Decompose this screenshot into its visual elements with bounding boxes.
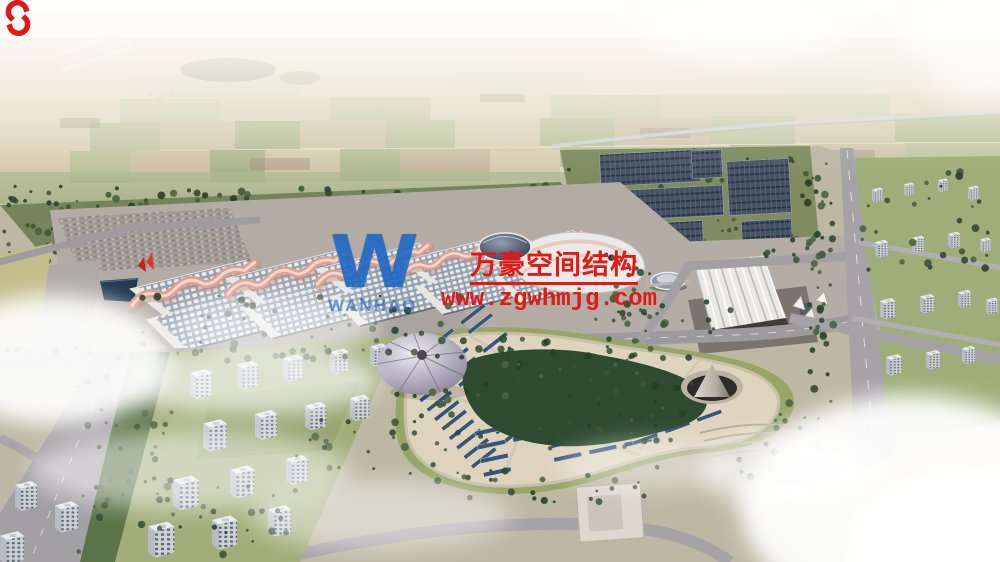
tree — [817, 417, 820, 420]
tree — [564, 432, 569, 437]
tree — [460, 337, 467, 344]
tree — [532, 496, 536, 500]
tree — [606, 345, 609, 348]
tree — [309, 438, 312, 441]
tree — [587, 424, 591, 428]
tree — [244, 302, 249, 307]
tree — [246, 529, 249, 532]
tree — [568, 421, 571, 424]
tree — [144, 198, 148, 202]
tree — [820, 236, 824, 240]
tree — [419, 331, 424, 336]
tree — [548, 446, 552, 450]
tree — [369, 325, 376, 332]
tree — [456, 472, 459, 475]
tree — [807, 302, 812, 307]
tree — [814, 189, 819, 194]
tree — [138, 427, 140, 429]
tree — [660, 303, 665, 308]
tree — [528, 357, 533, 362]
tree — [279, 352, 286, 359]
tree — [411, 349, 418, 356]
tree — [660, 355, 666, 361]
tree — [493, 478, 498, 483]
tree — [259, 508, 265, 514]
tree — [201, 504, 206, 509]
tree — [785, 399, 793, 407]
tree — [959, 248, 965, 254]
tree — [252, 540, 255, 543]
tree — [596, 431, 599, 434]
tree — [176, 352, 179, 355]
tree — [640, 381, 647, 388]
tree — [613, 362, 618, 367]
tree — [811, 260, 818, 267]
logo-letter-w: W — [330, 226, 419, 298]
tree — [52, 348, 58, 354]
tree — [139, 295, 145, 301]
tree — [568, 394, 572, 398]
tree — [164, 483, 172, 491]
tree — [31, 224, 36, 229]
logo-wordmark: WANHAO — [328, 296, 417, 316]
tree — [404, 333, 408, 337]
tree — [324, 439, 329, 444]
tree — [574, 353, 577, 356]
tree — [409, 472, 412, 475]
tree — [971, 205, 974, 208]
tree — [655, 465, 660, 470]
tree — [811, 267, 814, 270]
tree — [822, 302, 826, 306]
tree — [674, 385, 680, 391]
tree — [89, 351, 92, 354]
tree — [630, 432, 633, 435]
tree — [818, 270, 822, 274]
tree — [126, 373, 132, 379]
tree — [66, 204, 71, 209]
tree — [105, 421, 108, 424]
tree — [238, 188, 246, 196]
tree — [112, 195, 120, 203]
tree — [163, 422, 168, 427]
tree — [23, 199, 27, 203]
tree — [820, 332, 827, 339]
tree — [347, 323, 351, 327]
tree — [550, 349, 557, 356]
tree — [207, 315, 211, 319]
tree — [972, 224, 980, 232]
tree — [443, 388, 448, 393]
tree — [567, 168, 571, 172]
tree — [167, 477, 173, 483]
tree — [159, 368, 165, 374]
tree — [829, 202, 832, 205]
tree — [981, 264, 989, 272]
tree — [435, 401, 440, 406]
tree — [860, 238, 864, 242]
tree — [826, 372, 830, 376]
tree — [391, 327, 398, 334]
tree — [152, 456, 159, 463]
tree — [798, 426, 803, 431]
tree — [199, 349, 203, 353]
tree — [212, 524, 217, 529]
tree — [502, 392, 509, 399]
tree — [97, 445, 101, 449]
tree — [122, 493, 125, 496]
tree — [8, 196, 12, 200]
tree — [171, 512, 175, 516]
tree — [249, 303, 256, 310]
tree — [782, 418, 788, 424]
tree — [540, 477, 546, 483]
tree — [955, 172, 963, 180]
tree — [99, 408, 103, 412]
tree — [572, 364, 577, 369]
tree — [732, 218, 736, 222]
tree — [630, 418, 633, 421]
tree — [589, 378, 593, 382]
tree — [652, 382, 659, 389]
plaza-building — [576, 483, 644, 542]
tree — [779, 413, 782, 416]
tree — [278, 516, 283, 521]
tree — [712, 327, 715, 330]
tree — [300, 348, 306, 354]
tree — [607, 348, 613, 354]
tree — [94, 485, 99, 490]
tree — [810, 385, 818, 393]
tree — [438, 321, 444, 327]
tree — [765, 250, 771, 256]
tree — [814, 175, 821, 182]
tree — [518, 381, 521, 384]
tree — [774, 419, 778, 423]
tree — [170, 190, 177, 197]
tree — [505, 354, 508, 357]
tree — [638, 417, 643, 422]
tree — [829, 283, 832, 286]
tree — [126, 479, 132, 485]
tree — [310, 335, 313, 338]
tree — [179, 525, 182, 528]
tree — [110, 447, 113, 450]
tree — [74, 346, 78, 350]
tree — [367, 450, 370, 453]
tree — [809, 326, 812, 329]
tree — [508, 489, 515, 496]
tree — [419, 413, 424, 418]
tree — [957, 218, 963, 224]
tree — [429, 389, 436, 396]
tree — [793, 257, 800, 264]
tree — [326, 465, 332, 471]
tree — [467, 495, 473, 501]
tree — [6, 203, 11, 208]
tree — [115, 355, 121, 361]
tree — [641, 438, 647, 444]
tree — [158, 192, 166, 200]
tree — [459, 355, 464, 360]
tree — [814, 231, 821, 238]
tree — [54, 201, 59, 206]
tree — [649, 414, 654, 419]
tree — [596, 395, 601, 400]
tree — [740, 470, 744, 474]
tree — [970, 256, 976, 262]
tree — [476, 394, 479, 397]
tree — [273, 353, 279, 359]
tree — [774, 469, 778, 473]
tree — [637, 481, 640, 484]
tree — [76, 200, 79, 203]
tree — [346, 419, 351, 424]
tree — [829, 235, 836, 242]
tree — [549, 438, 556, 445]
tree — [804, 199, 812, 207]
tree — [800, 194, 805, 199]
tree — [283, 530, 289, 536]
tree — [647, 314, 652, 319]
tree — [679, 411, 686, 418]
tree — [475, 345, 483, 353]
tree — [484, 443, 488, 447]
tree — [99, 484, 104, 489]
tree — [790, 237, 795, 242]
tree — [586, 384, 592, 390]
tree — [635, 371, 639, 375]
tree — [604, 369, 611, 376]
tree — [622, 444, 627, 449]
tree — [141, 331, 144, 334]
tree — [96, 514, 103, 521]
tree — [717, 219, 720, 222]
tree — [105, 497, 111, 503]
tree — [530, 490, 535, 495]
tree — [706, 317, 712, 323]
tree — [324, 345, 327, 348]
tree — [736, 457, 742, 463]
tree — [734, 227, 738, 231]
tree — [93, 505, 96, 508]
tree — [262, 332, 267, 337]
tree — [138, 521, 145, 528]
tree — [187, 188, 191, 192]
tree — [899, 259, 904, 264]
tree — [624, 321, 630, 327]
tree — [874, 230, 878, 234]
tree — [817, 286, 820, 289]
tree — [76, 549, 81, 554]
tree — [912, 202, 917, 207]
tree — [501, 361, 509, 369]
tree — [596, 490, 599, 493]
tree — [142, 374, 147, 379]
tree — [246, 484, 250, 488]
tree — [272, 494, 275, 497]
tree — [293, 488, 298, 493]
tree — [84, 422, 91, 429]
tree — [392, 436, 395, 439]
tree — [342, 354, 348, 360]
tree — [200, 314, 203, 317]
tree — [101, 502, 108, 509]
tree — [156, 496, 163, 503]
tree — [211, 509, 217, 515]
tree — [128, 468, 134, 474]
tree — [594, 362, 599, 367]
tree — [815, 441, 821, 447]
tree — [165, 497, 171, 503]
tree — [435, 354, 440, 359]
tree — [596, 498, 603, 505]
tree — [867, 204, 870, 207]
tree — [924, 259, 932, 267]
tree — [438, 337, 446, 345]
tree — [589, 497, 593, 501]
tree — [319, 418, 323, 422]
tree — [394, 392, 399, 397]
tree — [152, 476, 156, 480]
tree — [115, 186, 119, 190]
tree — [946, 170, 952, 176]
tree — [242, 317, 246, 321]
tree — [610, 486, 615, 491]
tree — [412, 430, 417, 435]
tree — [817, 307, 824, 314]
tree — [771, 248, 775, 252]
tree — [391, 419, 399, 427]
tree — [704, 299, 709, 304]
tree — [653, 437, 659, 443]
tree — [374, 338, 379, 343]
tree — [541, 497, 548, 504]
tree — [940, 252, 947, 259]
tree — [681, 319, 684, 322]
tree — [225, 531, 228, 534]
tree — [612, 477, 619, 484]
tree — [159, 353, 162, 356]
tree — [985, 254, 988, 257]
company-name-watermark: 万豪空间结构 — [470, 251, 638, 285]
tree — [499, 335, 507, 343]
tree — [130, 355, 133, 358]
tree — [217, 193, 222, 198]
tree — [628, 435, 632, 439]
tree — [613, 389, 618, 394]
tree — [353, 431, 356, 434]
tree — [810, 347, 816, 353]
tree — [507, 348, 514, 355]
tree — [502, 467, 509, 474]
tree — [14, 185, 17, 188]
tree — [35, 227, 43, 235]
tree — [539, 374, 544, 379]
tree — [150, 421, 158, 429]
tree — [746, 157, 749, 160]
tree — [830, 221, 836, 227]
tree — [272, 309, 277, 314]
tree — [445, 423, 449, 427]
tree — [489, 478, 493, 482]
tree — [626, 359, 629, 362]
tree — [374, 322, 377, 325]
tree — [533, 430, 539, 436]
tree — [154, 445, 158, 449]
tree — [773, 425, 779, 431]
tree — [811, 177, 814, 180]
tree — [619, 414, 622, 417]
tree — [298, 186, 304, 192]
tree — [544, 340, 547, 343]
tree — [612, 319, 616, 323]
tree — [317, 294, 323, 300]
tree — [792, 253, 796, 257]
tree — [77, 385, 80, 388]
tree — [648, 346, 654, 352]
tree — [558, 368, 561, 371]
tree — [148, 376, 151, 379]
tree — [821, 191, 829, 199]
tree — [194, 190, 201, 197]
tree — [141, 410, 148, 417]
tree — [225, 310, 232, 317]
tree — [401, 443, 409, 451]
tree — [977, 199, 982, 204]
tree — [928, 197, 931, 200]
tree — [106, 192, 112, 198]
tree — [596, 419, 602, 425]
tree — [924, 181, 929, 186]
tree — [15, 346, 21, 352]
tree — [125, 398, 129, 402]
tree — [821, 200, 824, 203]
tree — [585, 473, 590, 478]
tree — [538, 427, 542, 431]
tree — [642, 494, 647, 499]
tree — [516, 366, 520, 370]
tree — [113, 382, 116, 385]
tree — [170, 410, 174, 414]
tree — [25, 223, 29, 227]
tree — [747, 473, 755, 481]
tree — [195, 198, 200, 203]
tree — [219, 551, 227, 559]
tree — [961, 257, 968, 264]
tree — [202, 192, 208, 198]
tree — [29, 190, 32, 193]
tree — [497, 346, 504, 353]
tree — [325, 189, 332, 196]
tree — [448, 411, 455, 418]
tree — [2, 230, 6, 234]
tree — [806, 239, 813, 246]
tree — [238, 297, 245, 304]
tree — [444, 448, 447, 451]
tree — [115, 424, 118, 427]
tree — [337, 466, 340, 469]
tree — [275, 508, 280, 513]
tree — [268, 528, 275, 535]
tree — [585, 352, 593, 360]
tree — [478, 434, 483, 439]
tree — [633, 485, 638, 490]
tree — [708, 330, 712, 334]
tree — [483, 381, 489, 387]
tree — [635, 339, 639, 343]
tree — [721, 230, 724, 233]
